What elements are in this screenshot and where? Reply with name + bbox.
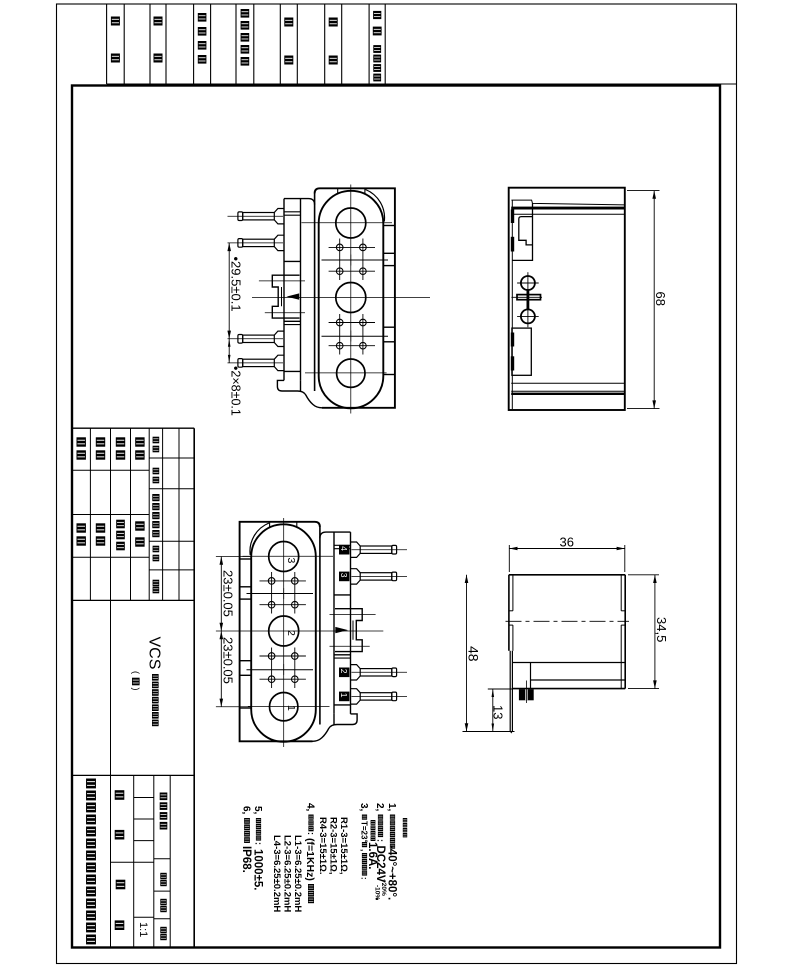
svg-text:2: 2	[285, 630, 297, 636]
svg-text:1: 1	[339, 693, 349, 698]
svg-text:3: 3	[285, 558, 297, 564]
svg-text:•29.5±0.1: •29.5±0.1	[229, 257, 244, 312]
svg-text:48: 48	[466, 646, 482, 662]
svg-text:R4-3=15±1Ω.: R4-3=15±1Ω.	[317, 817, 328, 874]
svg-text::: :	[253, 842, 263, 845]
svg-text:R2-3=15±1Ω,: R2-3=15±1Ω,	[328, 817, 339, 874]
svg-text:68: 68	[653, 292, 668, 306]
svg-text::: :	[360, 877, 369, 880]
svg-text:1,: 1,	[386, 803, 397, 812]
svg-text:23±0.05: 23±0.05	[221, 570, 236, 617]
svg-text:1: 1	[285, 705, 297, 711]
svg-text:3,: 3,	[358, 803, 369, 812]
svg-text:,: ,	[360, 849, 369, 851]
svg-text:(f=1KHz): (f=1KHz)	[304, 838, 316, 881]
svg-text:IP68.: IP68.	[240, 846, 252, 873]
svg-text:5,: 5,	[252, 806, 263, 815]
svg-text:1.6A.: 1.6A.	[366, 842, 378, 870]
svg-text:L2-3=6.25±0.2mH: L2-3=6.25±0.2mH	[282, 835, 293, 912]
svg-text:): )	[131, 688, 141, 691]
svg-text:36: 36	[560, 535, 574, 550]
svg-text:1:1: 1:1	[137, 922, 149, 937]
svg-text:.: .	[373, 897, 387, 900]
svg-text:4,: 4,	[304, 803, 315, 812]
svg-text:L1-3=6.25±0.2mH: L1-3=6.25±0.2mH	[292, 835, 303, 912]
svg-text:T=23°: T=23°	[360, 821, 369, 843]
svg-text:4: 4	[339, 546, 349, 551]
svg-text:23±0.05: 23±0.05	[221, 637, 236, 684]
svg-text:6,: 6,	[240, 806, 251, 815]
svg-text:L4-3=6.25±0.2mH: L4-3=6.25±0.2mH	[271, 835, 282, 912]
svg-text:2: 2	[339, 669, 349, 674]
svg-text:VCS: VCS	[146, 637, 163, 670]
svg-text:34,5: 34,5	[654, 617, 669, 642]
svg-text::: :	[306, 832, 316, 835]
svg-text:3: 3	[339, 573, 349, 578]
svg-text:2,: 2,	[374, 803, 385, 812]
svg-text:1000±5.: 1000±5.	[251, 849, 263, 891]
svg-text:R1-3=15±1Ω,: R1-3=15±1Ω,	[338, 817, 349, 874]
svg-text:(: (	[131, 671, 141, 674]
svg-text:•2×8±0.1: •2×8±0.1	[229, 366, 243, 416]
svg-text:13: 13	[491, 705, 506, 719]
